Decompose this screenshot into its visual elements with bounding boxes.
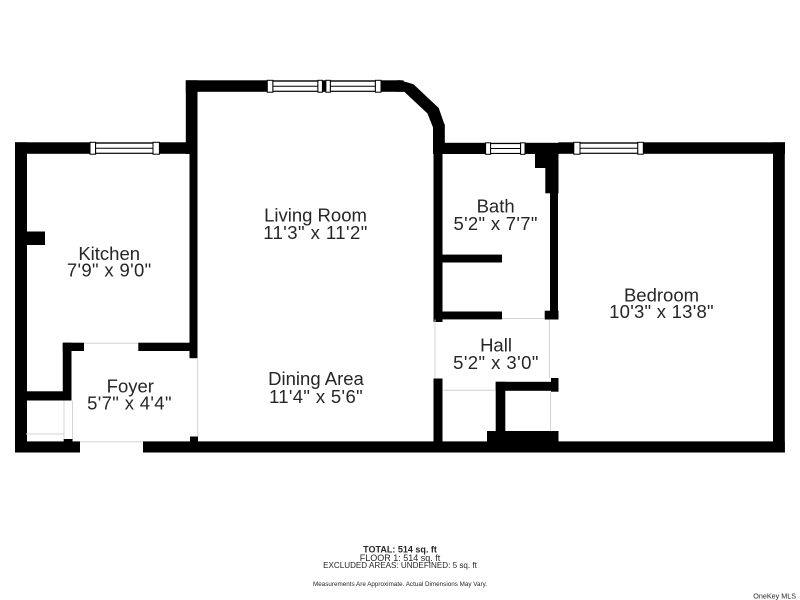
svg-text:EXCLUDED AREAS: UNDEFINED: 5 s: EXCLUDED AREAS: UNDEFINED: 5 sq. ft <box>323 561 478 570</box>
svg-text:11'4" x 5'6": 11'4" x 5'6" <box>269 386 363 407</box>
svg-text:10'3" x 13'8": 10'3" x 13'8" <box>609 301 714 322</box>
svg-text:5'2" x 7'7": 5'2" x 7'7" <box>454 213 538 234</box>
svg-text:5'7" x 4'4": 5'7" x 4'4" <box>87 393 172 414</box>
svg-text:7'9" x 9'0": 7'9" x 9'0" <box>67 260 152 281</box>
svg-text:OneKey MLS: OneKey MLS <box>753 592 796 600</box>
svg-text:11'3" x 11'2": 11'3" x 11'2" <box>263 222 368 243</box>
svg-text:5'2" x 3'0": 5'2" x 3'0" <box>453 352 539 373</box>
svg-text:Measurements Are Approximate.: Measurements Are Approximate. Actual Dim… <box>313 581 487 588</box>
